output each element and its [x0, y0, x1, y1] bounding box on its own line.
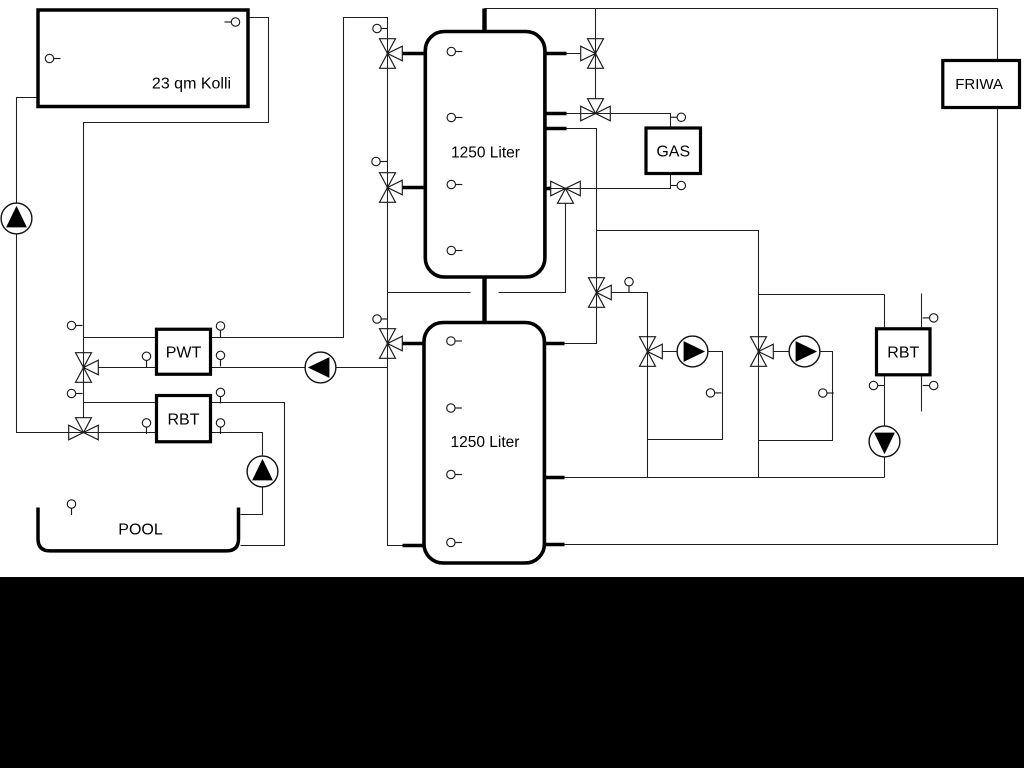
svg-text:23 qm Kolli: 23 qm Kolli: [152, 76, 231, 93]
svg-text:FRIWA: FRIWA: [955, 76, 1003, 93]
svg-text:RBT: RBT: [887, 345, 919, 362]
svg-text:1250 Liter: 1250 Liter: [451, 145, 520, 162]
svg-text:PWT: PWT: [166, 345, 202, 362]
svg-text:GAS: GAS: [656, 144, 690, 161]
svg-text:1250 Liter: 1250 Liter: [451, 434, 520, 451]
svg-text:POOL: POOL: [118, 522, 163, 539]
svg-text:RBT: RBT: [168, 412, 200, 429]
